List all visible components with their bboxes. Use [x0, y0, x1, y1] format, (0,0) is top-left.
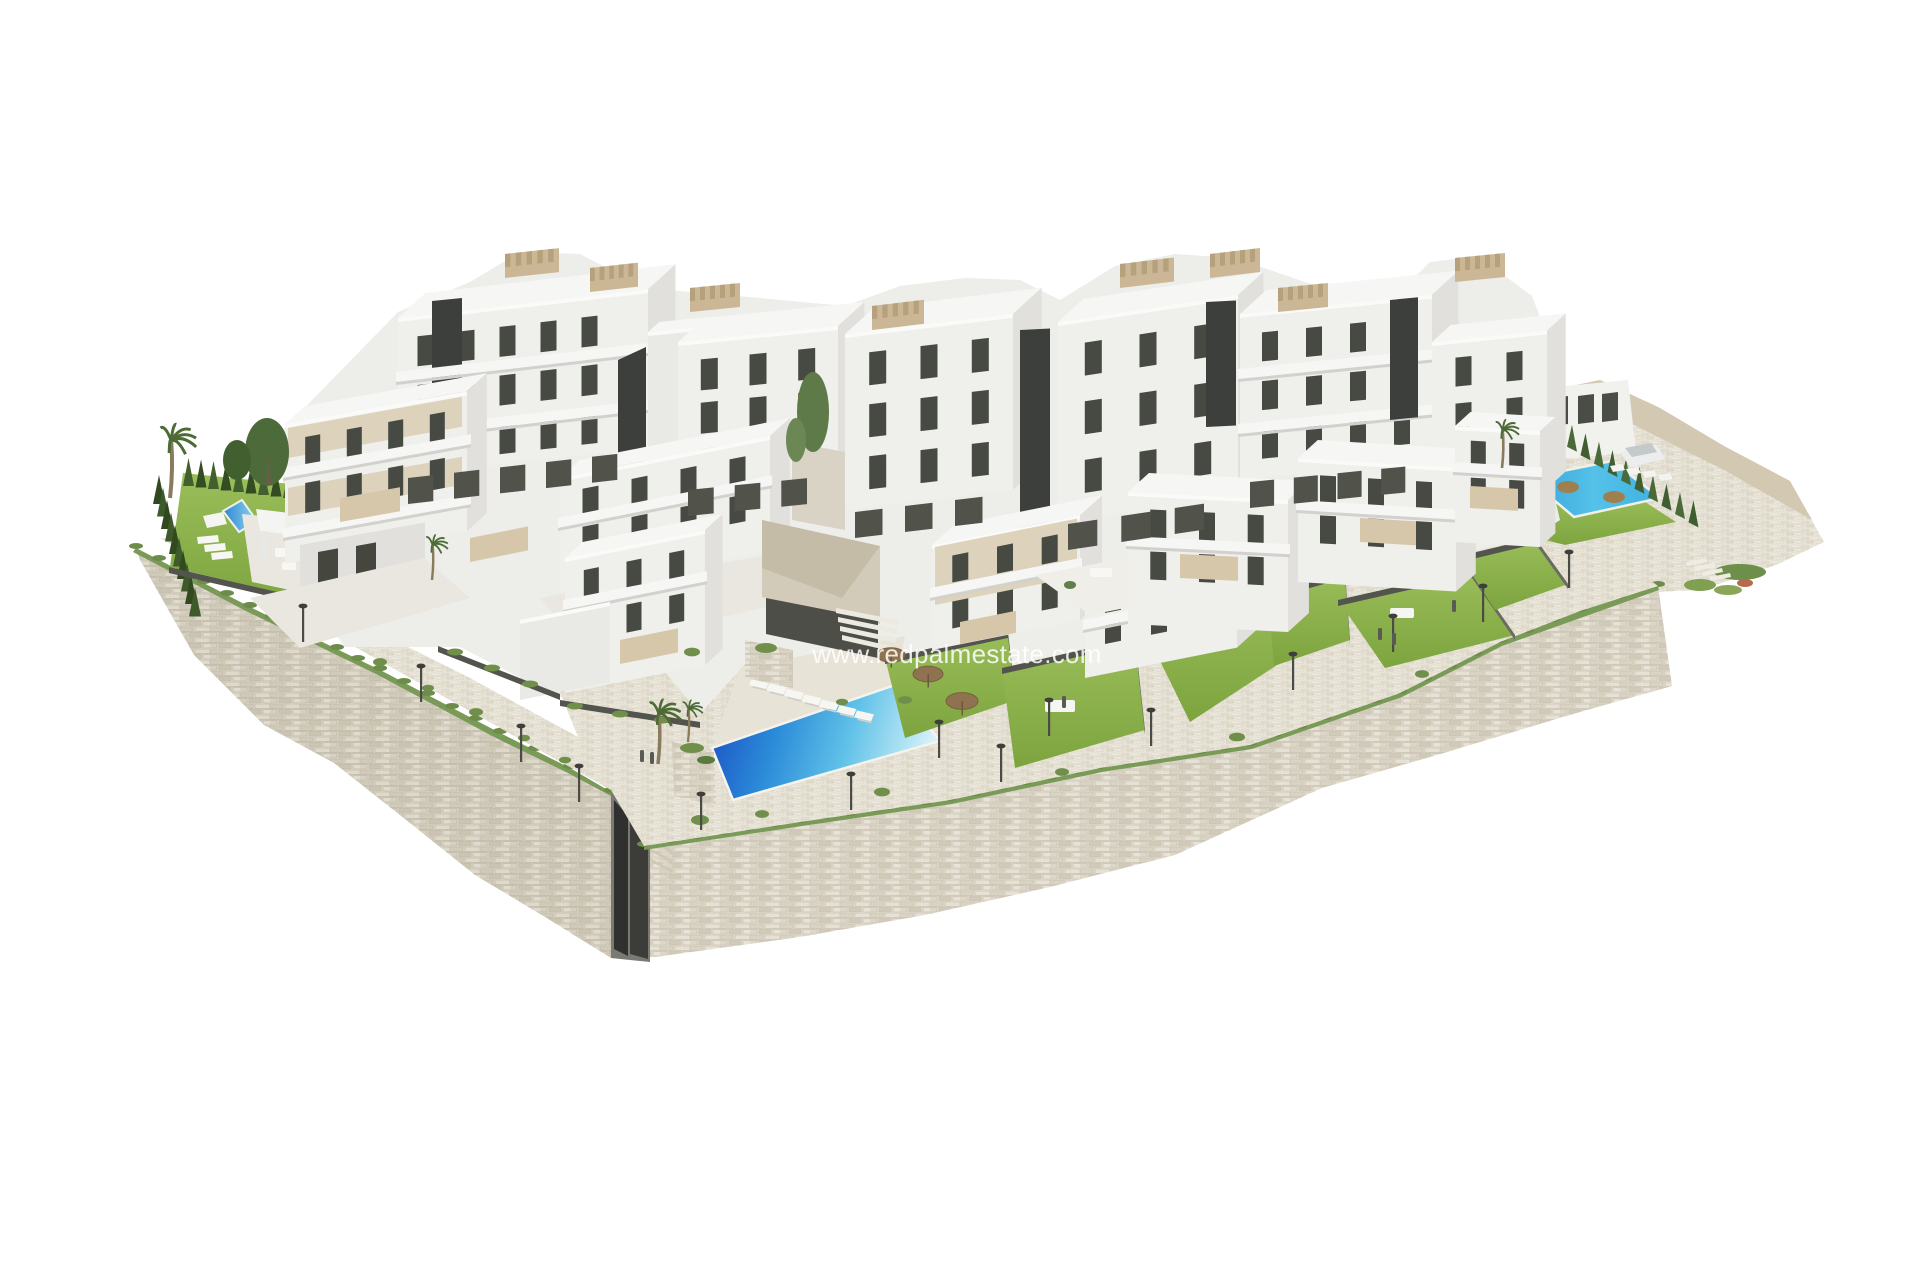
svg-text:www.redpalmestate.com: www.redpalmestate.com	[811, 639, 1102, 669]
